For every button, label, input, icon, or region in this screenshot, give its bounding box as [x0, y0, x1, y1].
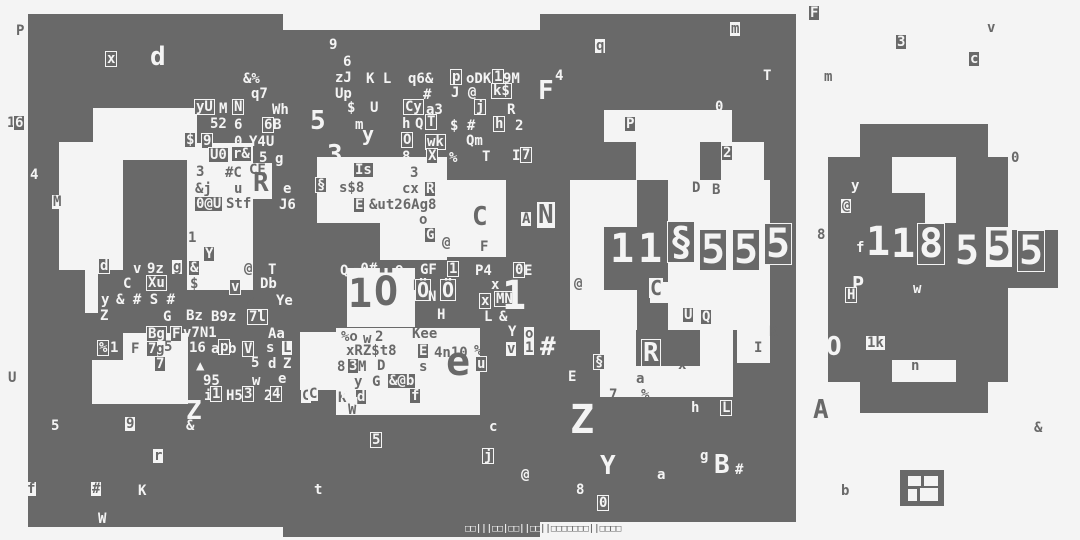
glyph: W — [98, 512, 106, 526]
glyph: U — [370, 101, 378, 115]
glyph: d — [150, 44, 166, 70]
glyph: &% — [243, 72, 260, 86]
glyph: o — [419, 213, 427, 227]
glyph: e — [283, 182, 291, 196]
white-cutout — [93, 108, 197, 143]
glyph: w — [252, 374, 260, 388]
glyph: Qm — [466, 134, 483, 148]
glyph: 3 — [348, 359, 358, 373]
glyph: y — [101, 293, 109, 307]
white-cutout — [925, 193, 956, 223]
glyph: N — [233, 100, 243, 114]
glyph: R — [642, 340, 660, 366]
glyph: Wh — [272, 103, 289, 117]
glyph: 9z — [147, 262, 164, 276]
glyph: M — [52, 195, 62, 209]
glyph: Kee — [412, 327, 437, 341]
glyph: § — [668, 222, 694, 262]
glyph: &@b — [388, 374, 415, 388]
glyph: xRZ$t8 — [346, 344, 397, 358]
white-cutout — [59, 142, 123, 270]
glyph: C — [649, 278, 663, 298]
white-cutout — [892, 360, 956, 382]
glyph: G — [372, 375, 380, 389]
glyph: wk — [426, 135, 445, 149]
glyph: 3 — [196, 165, 204, 179]
glyph: 4 — [271, 387, 281, 401]
glyph: P4 — [475, 264, 492, 278]
glyph: r& — [232, 147, 251, 161]
glyph: O — [826, 334, 842, 360]
glyph: v — [133, 262, 141, 276]
glyph: & — [186, 419, 194, 433]
glyph: X — [427, 149, 437, 163]
glyph: A — [813, 397, 829, 423]
glitch-noise-canvas: P164MUxd&%q796zJK Lq6&poDK19M4FUp#J @k$$… — [0, 0, 1080, 540]
glyph: F — [809, 6, 819, 20]
glyph: 1 — [493, 70, 503, 84]
glyph: F — [131, 342, 139, 356]
glyph: # — [735, 463, 743, 477]
glyph: B — [712, 183, 720, 197]
glyph: N — [537, 202, 555, 228]
glyph: B — [714, 452, 730, 478]
glyph: E — [418, 344, 428, 358]
glyph: Ö — [374, 272, 398, 312]
glyph: ▲ — [196, 359, 204, 373]
glyph: M — [219, 102, 227, 116]
glyph: 4 — [30, 168, 38, 182]
glyph: # — [423, 88, 431, 102]
glyph: I — [512, 149, 520, 163]
white-cutout — [636, 142, 700, 180]
glyph: u — [234, 182, 242, 196]
window-icon — [900, 470, 944, 506]
glyph: 0 — [1011, 151, 1019, 165]
glyph: 1 — [866, 222, 890, 262]
glyph: R — [425, 182, 435, 196]
glyph: Xu — [147, 276, 166, 290]
glyph: 0 — [598, 496, 608, 510]
glyph: E — [568, 370, 576, 384]
glyph: I — [754, 341, 762, 355]
glyph: 6 — [343, 55, 351, 69]
glyph: v — [230, 280, 240, 294]
glyph: f — [856, 241, 864, 255]
glyph: E — [354, 198, 364, 212]
glyph: Y — [204, 247, 214, 261]
glyph: cx — [402, 182, 419, 196]
glyph: T — [268, 263, 276, 277]
glyph: 8 — [816, 228, 826, 242]
glyph: 8 — [576, 483, 584, 497]
glyph: a — [636, 372, 644, 386]
glyph: 1 — [188, 231, 196, 245]
glyph: % — [449, 151, 457, 165]
glyph: Stf — [226, 197, 251, 211]
glyph: g — [700, 449, 708, 463]
glyph: & — [189, 261, 199, 275]
glyph: oDK — [466, 72, 491, 86]
glyph: @ — [243, 262, 253, 276]
glyph: P — [625, 117, 635, 131]
glyph: T — [426, 115, 436, 129]
glyph: Is — [354, 163, 373, 177]
glyph: 8 — [402, 150, 410, 164]
glyph: 0 — [715, 100, 723, 114]
glyph: Ö — [441, 280, 455, 300]
glyph: 7 — [521, 148, 531, 162]
glyph: Y4U — [249, 135, 274, 149]
glyph: 5 — [310, 108, 326, 134]
glyph: x — [678, 358, 686, 372]
glyph: K — [341, 387, 349, 401]
window-pane — [920, 488, 938, 501]
glyph: N — [428, 290, 436, 304]
glyph: Q — [415, 117, 423, 131]
glyph: 9 — [202, 134, 212, 148]
glyph: 8 — [918, 224, 944, 264]
glyph: f — [410, 389, 420, 403]
glyph: g — [275, 152, 283, 166]
glyph: 5 — [700, 230, 726, 270]
glyph: 1 — [610, 229, 634, 269]
glyph: Z — [100, 309, 108, 323]
glyph: Y — [600, 453, 616, 479]
glyph: § — [316, 178, 326, 192]
glyph: % — [641, 388, 649, 402]
glyph: x — [106, 52, 116, 66]
glyph: e — [446, 342, 470, 382]
glyph: y — [354, 375, 362, 389]
glyph: 1 — [638, 229, 662, 269]
glyph: d — [268, 357, 276, 371]
glyph: z — [246, 294, 254, 308]
glyph: q — [595, 39, 605, 53]
glyph: @ — [573, 277, 583, 291]
glyph: @ — [441, 236, 451, 250]
glyph: K — [138, 484, 146, 498]
glyph: v — [506, 342, 516, 356]
glyph: 9 — [329, 38, 337, 52]
window-pane — [924, 476, 938, 486]
glyph: R — [507, 103, 515, 117]
glyph: v — [987, 21, 995, 35]
glyph: 1 — [891, 224, 915, 264]
glyph: § — [594, 355, 604, 369]
glyph: s — [266, 341, 274, 355]
glyph: $ — [347, 101, 355, 115]
glyph: Ye — [276, 294, 293, 308]
glyph: yU — [195, 100, 214, 114]
glyph: y — [851, 179, 859, 193]
glyph: U — [683, 308, 693, 322]
glyph: H — [437, 308, 445, 322]
glyph: 1 — [348, 274, 372, 314]
glyph: u — [350, 394, 358, 408]
glyph: s — [419, 360, 427, 374]
white-cutout — [85, 268, 98, 313]
glyph: Aa — [268, 327, 285, 341]
glyph: C — [308, 387, 318, 401]
glyph: 7 — [609, 388, 617, 402]
glyph: V — [243, 342, 253, 356]
glyph: C — [123, 277, 131, 291]
glyph: s$8 — [339, 181, 364, 195]
glyph: zJ — [335, 71, 352, 85]
glyph: 5 — [1018, 231, 1044, 271]
glyph: 7l — [248, 310, 267, 324]
glyph: H5 — [226, 389, 243, 403]
glyph: w — [92, 390, 100, 404]
glyph: D — [377, 359, 385, 373]
glyph: 7 — [155, 357, 165, 371]
glyph: L — [721, 401, 731, 415]
glyph: G — [425, 228, 435, 242]
glyph: b — [841, 484, 849, 498]
glyph: J6 — [279, 198, 296, 212]
glyph: v7N1 — [183, 326, 217, 340]
glyph: K L — [366, 72, 391, 86]
glyph: 1 — [448, 262, 458, 276]
glyph: 1 — [110, 341, 118, 355]
glyph: J — [147, 142, 155, 156]
glyph: @ — [841, 199, 851, 213]
glyph: m — [730, 22, 740, 36]
glyph: %o — [341, 330, 358, 344]
glyph: Up — [335, 87, 352, 101]
glyph: g — [172, 260, 182, 274]
gray-block — [860, 124, 988, 160]
glyph: 16 — [189, 341, 206, 355]
window-pane — [908, 476, 921, 486]
glyph: 3 — [243, 387, 253, 401]
glyph: b — [228, 342, 236, 356]
glyph: B9z — [211, 310, 236, 324]
glyph: x — [480, 294, 490, 308]
glyph: 5 — [251, 356, 259, 370]
gray-block — [860, 382, 988, 413]
glyph: n — [911, 359, 919, 373]
glyph: 5 — [986, 227, 1012, 267]
glyph: j — [475, 100, 485, 114]
glyph: 2 — [722, 146, 732, 160]
glyph: U — [8, 371, 16, 385]
glyph: P — [16, 24, 24, 38]
glyph: Q — [701, 310, 711, 324]
glyph: 1 — [524, 341, 534, 355]
glyph: 3 — [410, 166, 418, 180]
glyph: F — [480, 240, 488, 254]
glyph: 6 — [14, 116, 24, 130]
glyph: G — [163, 310, 171, 324]
glyph: a — [657, 468, 665, 482]
glyph: & # S # — [116, 293, 175, 307]
glyph: w — [913, 282, 921, 296]
glyph: F — [538, 78, 554, 104]
glyph: 1 — [502, 276, 526, 316]
glyph: 5 — [51, 419, 59, 433]
barcode-strip: ||□□□□□□□||□□□□ — [540, 525, 621, 534]
glyph: $ — [185, 133, 195, 147]
glyph: 6 — [263, 118, 273, 132]
glyph: D — [692, 181, 700, 195]
glyph: 4 — [555, 69, 563, 83]
glyph: % — [98, 341, 108, 355]
glyph: Z — [570, 400, 594, 440]
glyph: 1 — [211, 387, 221, 401]
window-pane — [908, 489, 917, 501]
glyph: #C — [225, 166, 242, 180]
glyph: 8 — [337, 360, 345, 374]
glyph: c — [969, 52, 979, 66]
glyph: q6& — [408, 72, 433, 86]
glyph: r — [153, 449, 163, 463]
glyph: L — [484, 310, 492, 324]
white-cutout — [604, 110, 732, 142]
glyph: Db — [260, 277, 277, 291]
glyph: &ut26Ag8 — [369, 198, 436, 212]
glyph: d — [99, 259, 109, 273]
glyph: p — [451, 70, 461, 84]
glyph: @ — [521, 468, 529, 482]
glyph: Bz — [186, 309, 203, 323]
glyph: y — [362, 124, 374, 144]
glyph: Z — [283, 357, 291, 371]
glyph: 5 — [765, 224, 791, 264]
glyph: 6 — [234, 118, 242, 132]
glyph: u — [476, 357, 486, 371]
glyph: 1k — [866, 336, 885, 350]
glyph: j — [483, 449, 493, 463]
glyph: 5 — [371, 433, 381, 447]
glyph: 2 — [515, 119, 523, 133]
glyph: o — [524, 327, 534, 341]
glyph: O — [402, 133, 412, 147]
glyph: L — [282, 341, 292, 355]
glyph: c — [489, 420, 497, 434]
glyph: &j — [195, 182, 212, 196]
glyph: 3 — [896, 35, 906, 49]
glyph: T — [763, 69, 771, 83]
glyph: B — [273, 118, 281, 132]
glyph: & — [1034, 421, 1042, 435]
glyph: x — [491, 278, 499, 292]
glyph: f — [26, 482, 36, 496]
glyph: 9 — [125, 417, 135, 431]
glyph: e — [278, 372, 286, 386]
glyph: % — [474, 344, 482, 358]
glyph: m — [824, 70, 832, 84]
glyph: Y — [508, 325, 516, 339]
white-cutout — [892, 157, 956, 193]
glyph: T — [482, 150, 490, 164]
glyph: q7 — [251, 87, 268, 101]
glyph: GF — [420, 263, 437, 277]
glyph: F — [171, 327, 181, 341]
glyph: 5 — [955, 231, 979, 271]
glyph: # — [540, 334, 556, 360]
glyph: 0@U — [195, 197, 222, 211]
glyph: C — [472, 204, 488, 230]
glyph: 5 — [164, 340, 172, 354]
glyph: h — [691, 401, 699, 415]
glyph: # — [91, 482, 101, 496]
glyph: t — [314, 483, 322, 497]
glyph: $ — [190, 277, 198, 291]
glyph: U0 — [209, 148, 228, 162]
glyph: A — [521, 212, 531, 226]
glyph: R — [769, 325, 777, 339]
glyph: $ # — [450, 119, 475, 133]
glyph: 3 — [327, 142, 343, 168]
glyph: H — [846, 288, 856, 302]
glyph: 5 — [733, 230, 759, 270]
glyph: h — [402, 117, 410, 131]
glyph: Cy — [404, 100, 423, 114]
glyph: 52 — [210, 117, 227, 131]
glyph: h — [494, 117, 504, 131]
glyph: k$ — [492, 84, 511, 98]
glyph: M — [358, 360, 366, 374]
glyph: J @ — [451, 86, 476, 100]
glyph: 2 — [375, 330, 383, 344]
white-cutout — [300, 332, 336, 390]
glyph: R — [253, 170, 269, 196]
